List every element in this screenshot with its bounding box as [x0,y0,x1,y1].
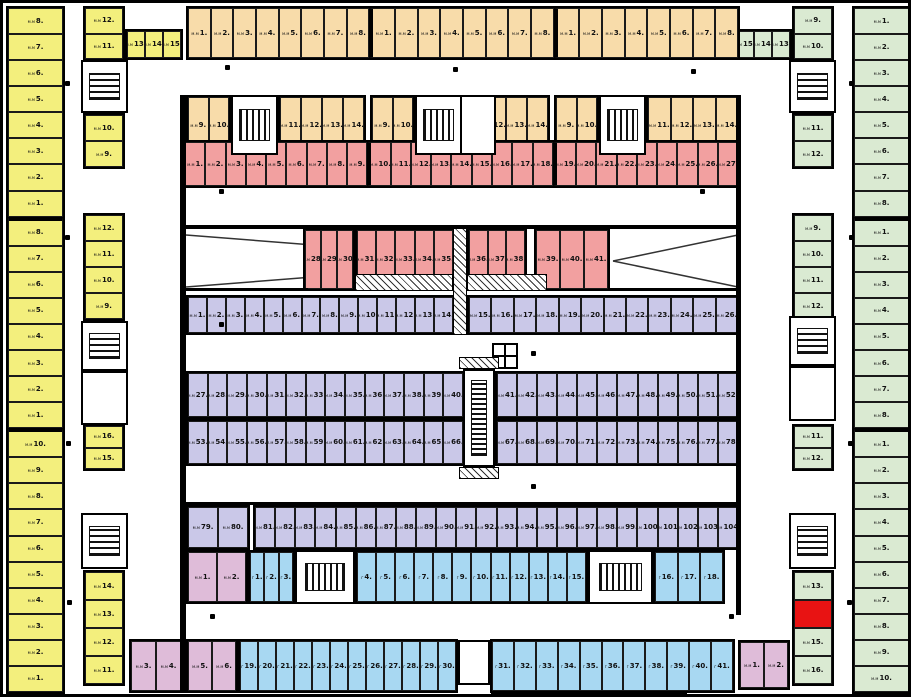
parking-stall[interactable]: м.м54. [208,421,228,464]
parking-stall[interactable]: м.м85. [336,507,356,548]
parking-stall[interactable]: м.м10. [85,267,123,293]
parking-stall[interactable]: м.м4. [8,324,63,350]
parking-stall[interactable]: м.м16. [794,656,832,684]
parking-stall[interactable]: м.м5. [279,8,302,58]
parking-stall[interactable]: м.м3. [226,297,245,333]
parking-stall[interactable]: м.м69. [537,421,557,464]
parking-stall[interactable]: г17. [678,552,701,602]
parking-stall[interactable]: м.м102. [678,507,698,548]
parking-stall[interactable]: м.м2. [207,297,226,333]
parking-stall[interactable]: г34. [558,641,580,691]
parking-stall[interactable]: м.м79. [188,507,218,548]
parking-stall[interactable]: м.м14. [145,31,163,58]
parking-stall[interactable]: г5. [376,552,395,602]
parking-stall[interactable]: м.м2. [211,8,234,58]
parking-stall[interactable]: м.м11. [391,142,411,186]
parking-stall[interactable]: м.м100. [637,507,657,548]
parking-stall[interactable]: м.м1. [188,297,207,333]
parking-stall[interactable]: м.м20. [576,142,596,186]
parking-stall[interactable]: м.м2. [854,34,909,60]
parking-stall[interactable]: м.м41. [497,373,517,417]
hatched-area [459,357,499,369]
parking-stall[interactable]: м.м5. [8,562,63,588]
parking-stall[interactable]: г12. [510,552,529,602]
parking-stall[interactable]: м.м84. [315,507,335,548]
stairwell [588,550,653,604]
parking-stall[interactable]: м.м7. [8,246,63,272]
parking-stall[interactable]: м.м2. [854,246,909,272]
parking-stall[interactable]: м.м2. [8,640,63,666]
parking-stall[interactable]: м.м39. [424,373,444,417]
parking-stall[interactable]: м.м4. [625,8,648,58]
parking-stall[interactable]: м.м25. [677,142,697,186]
parking-stall[interactable]: м.м4. [8,588,63,614]
parking-stall[interactable]: м.м7. [693,8,716,58]
column-marker [67,600,72,605]
parking-stall[interactable]: м.м2. [854,457,909,483]
parking-stall[interactable]: г14. [548,552,567,602]
parking-stall[interactable]: м.м11. [85,656,123,684]
parking-stall[interactable]: м.м87. [376,507,396,548]
parking-stall[interactable]: м.м93. [497,507,517,548]
parking-stall[interactable]: г31. [492,641,514,691]
parking-stall[interactable]: г28. [402,641,420,691]
parking-stall[interactable]: г25. [348,641,366,691]
parking-stall[interactable]: м.м17. [514,297,536,333]
parking-stall[interactable]: м.м18. [533,142,553,186]
parking-stall[interactable]: м.м3. [602,8,625,58]
parking-stall[interactable]: г27. [384,641,402,691]
parking-stall[interactable]: м.м13. [127,31,145,58]
parking-stall[interactable]: г30. [438,641,456,691]
parking-stall[interactable]: г39. [667,641,689,691]
parking-stall[interactable]: м.м11. [794,426,832,448]
parking-stall[interactable]: м.м31. [267,373,287,417]
floor-plan: м.м8.м.м7.м.м6.м.м5.м.м4.м.м3.м.м2.м.м1.… [0,0,911,697]
parking-stall[interactable]: м.м28. [208,373,228,417]
parking-stall[interactable]: м.м6. [8,536,63,562]
parking-stall[interactable]: м.м15. [163,31,181,58]
parking-stall[interactable]: м.м8. [8,483,63,509]
parking-stall[interactable]: м.м2. [205,142,225,186]
parking-stall[interactable]: м.м57. [267,421,287,464]
parking-stall[interactable]: м.м8. [531,8,554,58]
parking-stall[interactable]: м.м10. [8,428,63,457]
parking-stall[interactable]: м.м4. [440,8,463,58]
parking-stall[interactable]: м.м103. [698,507,718,548]
parking-stall[interactable]: м.м1. [369,8,395,58]
parking-stall[interactable]: м.м19. [553,142,576,186]
parking-stall[interactable]: м.м70. [557,421,577,464]
parking-stall[interactable]: м.м12. [85,628,123,656]
parking-stall[interactable]: м.м60. [325,421,345,464]
parking-zone-pu-a2: м.м15.м.м16.м.м17.м.м18.м.м19.м.м20.м.м2… [467,295,740,335]
parking-stall[interactable]: м.м3. [8,350,63,376]
parking-stall[interactable]: г9. [452,552,471,602]
parking-stall[interactable]: м.м9. [85,293,123,319]
parking-stall[interactable]: м.м68. [517,421,537,464]
parking-stall[interactable]: м.м12. [85,215,123,241]
parking-stall[interactable]: м.м50. [678,373,698,417]
parking-stall[interactable]: м.м25. [693,297,715,333]
parking-stall[interactable]: м.м8. [854,614,909,640]
parking-stall[interactable]: м.м44. [557,373,577,417]
parking-stall[interactable]: м.м8. [854,191,909,217]
parking-stall[interactable]: м.м34. [325,373,345,417]
parking-stall[interactable]: м.м29. [227,373,247,417]
parking-stall[interactable]: м.м101. [658,507,678,548]
parking-stall[interactable]: м.м3. [8,138,63,164]
parking-stall[interactable]: м.м62. [365,421,385,464]
parking-stall[interactable]: м.м36. [365,373,385,417]
parking-stall[interactable]: м.м1. [740,642,764,688]
stair-flight [797,328,828,354]
parking-stall[interactable]: м.м67. [497,421,517,464]
parking-stall[interactable]: м.м13. [415,297,434,333]
parking-stall[interactable]: м.м9. [8,457,63,483]
parking-stall[interactable]: м.м5. [8,86,63,112]
parking-stall[interactable]: м.м98. [597,507,617,548]
parking-stall[interactable]: г23. [312,641,330,691]
column-marker [219,322,224,327]
parking-stall[interactable]: м.м15. [85,448,123,470]
parking-stall[interactable]: м.м14. [754,31,772,58]
parking-stall[interactable]: м.м26. [716,297,738,333]
parking-stall[interactable]: м.м4. [854,509,909,535]
parking-stall[interactable]: м.м74. [638,421,658,464]
parking-stall[interactable]: г19. [240,641,258,691]
parking-stall[interactable]: м.м12. [794,141,832,167]
parking-stall[interactable]: м.м1. [185,142,205,186]
parking-stall[interactable]: м.м22. [626,297,648,333]
parking-stall[interactable]: м.м4. [8,112,63,138]
parking-stall[interactable]: г3. [279,552,293,602]
parking-stall[interactable]: м.м11. [85,241,123,267]
stairwell [599,95,646,155]
parking-stall[interactable]: м.м3. [131,641,156,691]
parking-stall[interactable]: м.м59. [306,421,326,464]
parking-stall[interactable]: м.м8. [854,402,909,428]
parking-stall[interactable]: м.м29. [321,230,337,289]
parking-stall[interactable]: м.м16. [491,297,513,333]
parking-stall[interactable]: м.м10. [794,34,832,60]
parking-stall[interactable]: м.м4. [854,298,909,324]
parking-stall[interactable]: м.м24. [671,297,693,333]
parking-stall[interactable]: м.м42. [517,373,537,417]
parking-stall[interactable]: м.м13. [794,572,832,600]
selected-stall[interactable] [794,600,832,628]
parking-zone-gr-in-2: м.м11.м.м12. [792,113,834,169]
parking-stall[interactable]: м.м7. [854,588,909,614]
parking-stall[interactable]: м.м11. [794,115,832,141]
parking-stall[interactable]: м.м76. [678,421,698,464]
parking-stall[interactable]: м.м61. [345,421,365,464]
parking-stall[interactable]: м.м7. [307,142,327,186]
parking-stall[interactable]: м.м7. [302,297,321,333]
parking-stall[interactable]: м.м63. [384,421,404,464]
parking-stall[interactable]: м.м19. [559,297,581,333]
parking-stall[interactable]: г1. [250,552,264,602]
parking-stall[interactable]: м.м9. [794,215,832,241]
parking-stall[interactable]: м.м13. [772,31,790,58]
parking-stall[interactable]: г2. [264,552,278,602]
parking-stall[interactable]: м.м96. [557,507,577,548]
parking-stall[interactable]: м.м10. [794,241,832,267]
parking-stall[interactable]: м.м7. [8,509,63,535]
parking-stall[interactable]: г32. [514,641,536,691]
parking-stall[interactable]: м.м6. [301,8,324,58]
parking-stall[interactable]: м.м47. [617,373,637,417]
parking-stall[interactable]: м.м4. [854,86,909,112]
parking-stall[interactable]: м.м14. [85,572,123,600]
parking-stall[interactable]: м.м27. [188,373,208,417]
parking-stall[interactable]: м.м24. [657,142,677,186]
parking-stall[interactable]: м.м7. [508,8,531,58]
parking-stall[interactable]: м.м6. [283,297,302,333]
parking-stall[interactable]: м.м53. [188,421,208,464]
parking-stall[interactable]: м.м41. [584,230,608,289]
parking-stall[interactable]: м.м77. [698,421,718,464]
parking-stall[interactable]: м.м6. [854,350,909,376]
parking-stall[interactable]: м.м73. [617,421,637,464]
parking-stall[interactable]: г22. [294,641,312,691]
stair-flight [305,563,345,591]
parking-stall[interactable]: м.м86. [356,507,376,548]
parking-stall[interactable]: г15. [567,552,586,602]
parking-stall[interactable]: м.м8. [327,142,347,186]
parking-stall[interactable]: м.м33. [306,373,326,417]
parking-stall[interactable]: м.м13. [85,600,123,628]
parking-stall[interactable]: м.м3. [233,8,256,58]
parking-stall[interactable]: м.м6. [854,138,909,164]
parking-stall[interactable]: м.м5. [264,297,283,333]
parking-stall[interactable]: м.м99. [617,507,637,548]
parking-stall[interactable]: м.м38. [404,373,424,417]
parking-stall[interactable]: м.м6. [670,8,693,58]
parking-stall[interactable]: м.м104. [718,507,738,548]
parking-stall[interactable]: м.м5. [647,8,670,58]
parking-stall[interactable]: м.м32. [286,373,306,417]
column-marker [849,235,854,240]
parking-stall[interactable]: м.м26. [698,142,718,186]
parking-stall[interactable]: м.м18. [536,297,558,333]
parking-stall[interactable]: м.м5. [854,536,909,562]
parking-stall[interactable]: м.м82. [275,507,295,548]
parking-stall[interactable]: м.м6. [8,272,63,298]
parking-stall[interactable]: г40. [689,641,711,691]
parking-stall[interactable]: м.м37. [384,373,404,417]
stairwell [81,321,128,371]
parking-stall[interactable]: м.м48. [638,373,658,417]
parking-stall[interactable]: м.м78. [718,421,738,464]
parking-stall[interactable]: м.м3. [854,60,909,86]
parking-stall[interactable]: м.м30. [337,230,353,289]
parking-stall[interactable]: м.м43. [537,373,557,417]
parking-stall[interactable]: м.м90. [436,507,456,548]
parking-stall[interactable]: г8. [433,552,452,602]
parking-stall[interactable]: м.м8. [8,8,63,34]
parking-stall[interactable]: м.м2. [8,164,63,190]
parking-stall[interactable]: г21. [276,641,294,691]
parking-stall[interactable]: м.м23. [648,297,670,333]
parking-stall[interactable]: м.м11. [794,267,832,293]
parking-stall[interactable]: м.м9. [85,141,123,167]
parking-stall[interactable]: м.м40. [443,373,463,417]
parking-stall[interactable]: г11. [491,552,510,602]
elevator-core [463,369,495,467]
parking-stall[interactable]: м.м15. [794,628,832,656]
parking-stall[interactable]: м.м8. [8,217,63,246]
parking-stall[interactable]: м.м9. [854,640,909,666]
parking-stall[interactable]: м.м92. [476,507,496,548]
parking-stall[interactable]: г4. [357,552,376,602]
parking-stall[interactable]: г41. [711,641,733,691]
parking-zone-yl-outer: м.м8.м.м7.м.м6.м.м5.м.м4.м.м3.м.м2.м.м1.… [6,6,65,694]
parking-stall[interactable]: м.м1. [188,552,217,602]
parking-stall[interactable]: м.м5. [854,324,909,350]
parking-stall[interactable]: м.м10. [367,142,390,186]
parking-stall[interactable]: м.м94. [517,507,537,548]
parking-stall[interactable]: м.м49. [658,373,678,417]
parking-stall[interactable]: м.м56. [247,421,267,464]
parking-stall[interactable]: м.м6. [486,8,509,58]
parking-stall[interactable]: м.м1. [854,8,909,34]
parking-stall[interactable]: м.м4. [156,641,181,691]
parking-stall[interactable]: г36. [602,641,624,691]
parking-stall[interactable]: г20. [258,641,276,691]
parking-stall[interactable]: м.м8. [715,8,738,58]
parking-stall[interactable]: м.м5. [188,641,212,691]
parking-stall[interactable]: м.м1. [854,428,909,457]
parking-stall[interactable]: м.м1. [8,666,63,692]
parking-stall[interactable]: м.м2. [8,376,63,402]
stairwell [789,513,836,569]
parking-stall[interactable]: м.м6. [286,142,306,186]
parking-stall[interactable]: м.м3. [8,614,63,640]
parking-stall[interactable]: м.м4. [256,8,279,58]
parking-stall[interactable]: м.м81. [255,507,275,548]
parking-stall[interactable]: м.м89. [416,507,436,548]
parking-stall[interactable]: м.м9. [794,8,832,34]
parking-stall[interactable]: м.м14. [434,297,453,333]
parking-stall[interactable]: м.м8. [320,297,339,333]
parking-stall[interactable]: м.м12. [396,297,415,333]
parking-stall[interactable]: м.м5. [463,8,486,58]
parking-stall[interactable]: м.м20. [581,297,603,333]
parking-stall[interactable]: м.м1. [8,191,63,217]
parking-stall[interactable]: м.м40. [560,230,584,289]
parking-stall[interactable]: м.м52. [718,373,738,417]
parking-stall[interactable]: м.м17. [512,142,532,186]
parking-stall[interactable]: м.м97. [577,507,597,548]
parking-stall[interactable]: м.м64. [404,421,424,464]
parking-stall[interactable]: г18. [700,552,723,602]
parking-stall[interactable]: м.м88. [396,507,416,548]
parking-stall[interactable]: м.м28. [305,230,321,289]
column-marker [453,67,458,72]
parking-stall[interactable]: м.м80. [218,507,248,548]
parking-stall[interactable]: м.м7. [854,164,909,190]
parking-stall[interactable]: м.м1. [554,8,580,58]
parking-stall[interactable]: м.м45. [577,373,597,417]
parking-stall[interactable]: г26. [366,641,384,691]
parking-stall[interactable]: г29. [420,641,438,691]
parking-stall[interactable]: м.м1. [8,402,63,428]
parking-stall[interactable]: г35. [580,641,602,691]
parking-stall[interactable]: м.м3. [418,8,441,58]
parking-stall[interactable]: г33. [536,641,558,691]
parking-stall[interactable]: м.м21. [604,297,626,333]
parking-stall[interactable]: м.м6. [212,641,236,691]
parking-stall[interactable]: м.м4. [245,297,264,333]
column-marker [531,484,536,489]
parking-stall[interactable]: м.м1. [854,217,909,246]
parking-stall[interactable]: г10. [471,552,490,602]
parking-stall[interactable]: м.м15. [469,297,491,333]
parking-stall[interactable]: г16. [655,552,678,602]
parking-stall[interactable]: м.м9. [339,297,358,333]
parking-stall[interactable]: м.м12. [794,448,832,470]
parking-stall[interactable]: м.м2. [395,8,418,58]
parking-stall[interactable]: м.м6. [854,562,909,588]
parking-stall[interactable]: м.м58. [286,421,306,464]
parking-stall[interactable]: м.м91. [456,507,476,548]
parking-stall[interactable]: м.м55. [227,421,247,464]
parking-stall[interactable]: м.м46. [597,373,617,417]
parking-stall[interactable]: м.м72. [597,421,617,464]
parking-stall[interactable]: г37. [623,641,645,691]
parking-stall[interactable]: м.м7. [854,376,909,402]
parking-stall[interactable]: м.м35. [345,373,365,417]
parking-stall[interactable]: г6. [395,552,414,602]
parking-stall[interactable]: м.м12. [85,8,123,34]
parking-stall[interactable]: м.м65. [424,421,444,464]
parking-stall[interactable]: м.м1. [188,8,211,58]
parking-stall[interactable]: г24. [330,641,348,691]
parking-stall[interactable]: м.м2. [764,642,788,688]
parking-stall[interactable]: м.м3. [854,272,909,298]
parking-stall[interactable]: м.м83. [295,507,315,548]
parking-stall[interactable]: м.м5. [854,112,909,138]
parking-stall[interactable]: м.м7. [8,34,63,60]
parking-stall[interactable]: м.м11. [85,34,123,60]
parking-stall[interactable]: г7. [414,552,433,602]
parking-stall[interactable]: м.м30. [247,373,267,417]
parking-stall[interactable]: м.м7. [324,8,347,58]
parking-stall[interactable]: м.м95. [537,507,557,548]
parking-stall[interactable]: м.м8. [347,8,370,58]
hatched-area [459,467,499,479]
parking-stall[interactable]: м.м2. [579,8,602,58]
parking-stall[interactable]: м.м9. [347,142,367,186]
parking-stall[interactable]: м.м11. [377,297,396,333]
parking-stall[interactable]: г38. [645,641,667,691]
parking-stall[interactable]: м.м10. [854,666,909,692]
parking-stall[interactable]: м.м6. [8,60,63,86]
parking-stall[interactable]: м.м5. [8,298,63,324]
parking-stall[interactable]: м.м71. [577,421,597,464]
parking-stall[interactable]: м.м16. [85,426,123,448]
parking-stall[interactable]: м.м3. [854,483,909,509]
parking-stall[interactable]: г13. [529,552,548,602]
parking-stall[interactable]: м.м10. [358,297,377,333]
parking-stall[interactable]: м.м51. [698,373,718,417]
parking-zone-bl-a1: г1.г2.г3. [248,550,295,604]
parking-stall[interactable]: м.м10. [85,115,123,141]
parking-stall[interactable]: м.м66. [443,421,463,464]
parking-stall[interactable]: м.м2. [217,552,246,602]
parking-stall[interactable]: м.м75. [658,421,678,464]
